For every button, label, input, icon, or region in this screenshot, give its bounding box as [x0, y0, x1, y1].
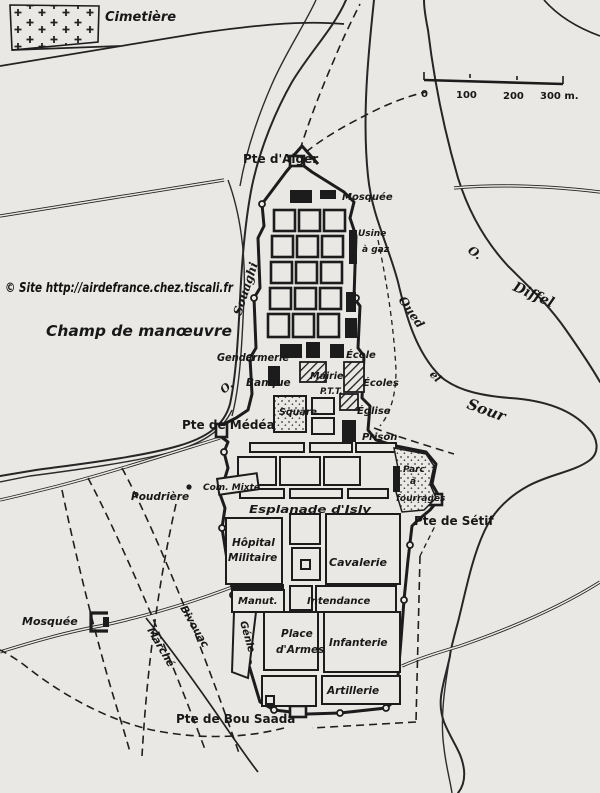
city-block [268, 314, 289, 337]
city-block [310, 443, 352, 452]
label-com-mixte: Com. Mixte [203, 483, 260, 493]
label-pte-alger: Pte d'Alger [243, 152, 318, 166]
city-block [270, 288, 291, 309]
label-ecole: École [346, 348, 376, 361]
small-monument [266, 696, 274, 704]
ecoles-building [344, 362, 364, 392]
scale-tick-0: 0 [421, 89, 428, 100]
city-block [293, 314, 314, 337]
city-block [321, 262, 342, 283]
label-manutention: Manut. [238, 596, 278, 607]
label-pte-setif: Pte de Sétif [414, 514, 494, 528]
cemetery [10, 5, 99, 50]
city-block [324, 210, 345, 231]
cavalerie-block [326, 514, 400, 584]
label-esplanade: Esplanade d'Isly [249, 503, 372, 516]
building-dark [346, 292, 356, 312]
building-dark [290, 190, 312, 203]
label-artillerie: Artillerie [326, 685, 379, 697]
label-parc-2: à [410, 477, 416, 487]
city-block [320, 288, 341, 309]
hopital-block [226, 518, 282, 584]
label-place-armes-1: Place [281, 628, 313, 640]
scale-tick-300: 300 m. [540, 91, 579, 102]
label-eglise: Église [357, 404, 391, 417]
map-canvas: 0 100 200 300 m. [0, 0, 600, 793]
label-pte-bou-saada: Pte de Bou Saada [176, 712, 295, 726]
mosque-north-building [320, 190, 336, 199]
label-ptt: P.T.T. [320, 387, 342, 397]
city-block [312, 418, 334, 434]
city-block [322, 236, 343, 257]
city-block [250, 443, 304, 452]
city-block [271, 262, 292, 283]
ecole-building [330, 344, 344, 358]
label-ecoles: Écoles [363, 376, 399, 389]
building-dark [393, 466, 400, 492]
scale-tick-100: 100 [456, 90, 477, 101]
label-hopital-2: Militaire [228, 552, 277, 564]
label-intendance: Intendance [307, 596, 370, 607]
city-block [290, 514, 320, 544]
city-block [272, 236, 293, 257]
label-poudriere: Poudrière [131, 491, 189, 503]
poudriere-point [186, 484, 191, 489]
city-block [296, 262, 317, 283]
label-mosquee-nord: Mosquée [342, 191, 393, 203]
label-usine-2: à gaz [362, 245, 390, 255]
small-monument [301, 560, 310, 569]
city-block [295, 288, 316, 309]
label-pte-medea: Pte de Médéa [182, 418, 275, 432]
city-block [356, 443, 396, 452]
label-champ-de-manoeuvre: Champ de manœuvre [46, 322, 232, 340]
building-dark [306, 342, 320, 358]
cemetery-plot [10, 5, 99, 50]
city-block [324, 457, 360, 485]
place-armes-block [264, 612, 318, 670]
city-block [290, 489, 342, 498]
label-cimetiere: Cimetière [105, 10, 176, 25]
city-block [274, 210, 295, 231]
label-parc-1: Parc [403, 465, 426, 475]
eglise-building [340, 394, 358, 410]
city-block [280, 457, 320, 485]
watermark-text: © Site http://airdefrance.chez.tiscali.f… [5, 281, 234, 296]
label-mairie: Mairie [310, 371, 344, 382]
city-block [348, 489, 388, 498]
label-banque: Banque [246, 377, 291, 389]
label-cavalerie: Cavalerie [329, 556, 388, 569]
city-block [318, 314, 339, 337]
building-dark [345, 318, 357, 338]
label-parc-3: fourrages [396, 494, 446, 504]
label-infanterie: Infanterie [329, 637, 388, 649]
label-usine-1: Usine [358, 229, 386, 239]
city-block [297, 236, 318, 257]
label-hopital-1: Hôpital [232, 537, 275, 549]
town-plan-svg: 0 100 200 300 m. [0, 0, 600, 793]
building-dark [342, 420, 356, 442]
label-square: Square [279, 407, 318, 418]
label-place-armes-2: d'Armes [276, 644, 324, 656]
label-mosquee-ouest: Mosquée [22, 615, 78, 628]
label-prison: Prison [362, 432, 397, 443]
gasworks-building [349, 230, 357, 264]
city-block [299, 210, 320, 231]
scale-tick-200: 200 [503, 91, 524, 102]
label-gendarmerie: Gendarmerie [217, 352, 289, 364]
